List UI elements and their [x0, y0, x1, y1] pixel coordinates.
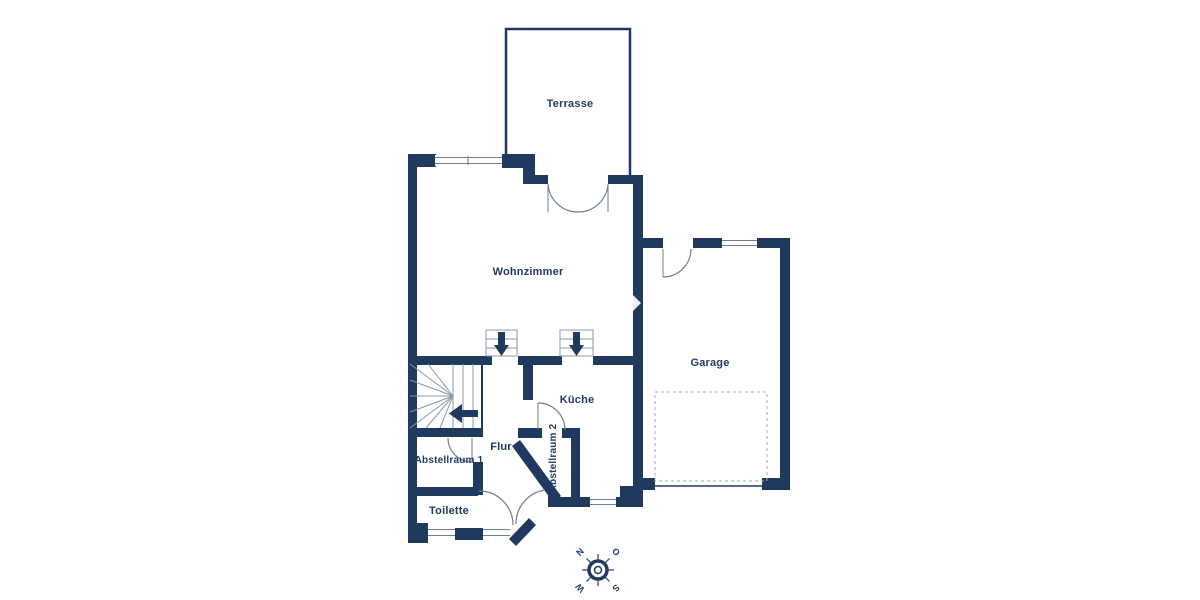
exterior-walls [408, 154, 790, 543]
room-label-abstellraum2: Abstellraum 2 [548, 423, 559, 492]
terrace-double-door [548, 184, 608, 212]
compass-west-label: W [573, 581, 586, 594]
compass-north-label: N [574, 546, 586, 558]
entrance-door [516, 490, 545, 524]
floor-plan-page: Terrasse Wohnzimmer Garage Küche Flur Ab… [0, 0, 1200, 600]
steps-to-kueche [560, 330, 593, 356]
toilette-door [479, 491, 513, 525]
compass-east-label: O [610, 546, 622, 558]
room-label-kueche: Küche [560, 394, 595, 406]
room-label-garage: Garage [690, 357, 729, 369]
garage-parking-area [655, 392, 767, 486]
room-label-abstellraum1: Abstellraum 1 [415, 455, 484, 466]
living-room-window [435, 155, 502, 166]
room-label-toilette: Toilette [429, 505, 469, 517]
compass-rose: N O S W [573, 546, 622, 595]
kitchen-window [590, 498, 616, 506]
garage-entry-door [663, 249, 691, 277]
toilette-window-2 [483, 528, 510, 537]
staircase [410, 364, 482, 428]
garage-window [722, 239, 757, 247]
room-label-wohnzimmer: Wohnzimmer [493, 266, 564, 278]
compass-center [595, 567, 602, 574]
compass-south-label: S [610, 582, 621, 593]
steps-to-flur [486, 330, 517, 356]
toilette-window-1 [428, 528, 455, 537]
room-label-terrasse: Terrasse [547, 98, 594, 110]
floor-plan-drawing: Terrasse Wohnzimmer Garage Küche Flur Ab… [0, 0, 1200, 600]
room-label-flur: Flur [490, 441, 512, 453]
